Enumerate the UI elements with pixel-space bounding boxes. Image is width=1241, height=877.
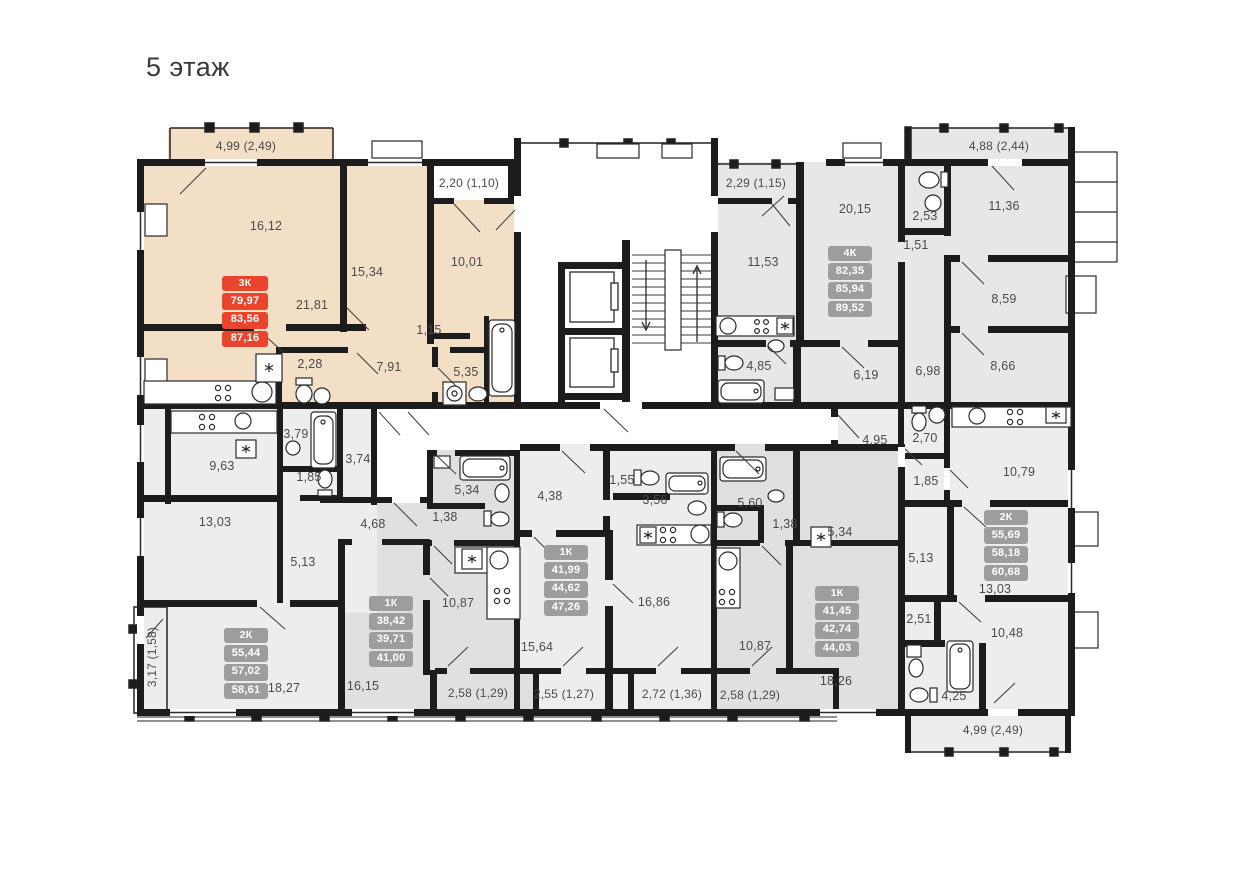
balcony-area-label: 4,99 (2,49) <box>216 139 276 153</box>
kitchen-sink-icon <box>691 525 709 543</box>
room-area-label: 5,35 <box>453 365 478 379</box>
bathtub-icon <box>311 412 336 468</box>
washing-machine-icon <box>443 382 466 405</box>
apartment-area-value: 55,69 <box>984 527 1028 544</box>
apartment-area-value: 79,97 <box>222 293 268 310</box>
room-area-label: 6,98 <box>915 364 940 378</box>
apartment-area-value: 47,26 <box>544 600 588 617</box>
toilet-icon <box>634 470 659 485</box>
apartment-area-value: 85,94 <box>828 282 872 299</box>
apartment-area-value: 55,44 <box>224 645 268 662</box>
balcony-area-label: 2,55 (1,27) <box>534 687 594 701</box>
bathtub-icon <box>718 380 764 403</box>
shelf <box>907 645 921 657</box>
room-area-label: 5,13 <box>908 551 933 565</box>
apartment-area-value: 58,61 <box>224 683 268 700</box>
kitchen-sink-icon <box>719 552 737 570</box>
room-area-label: 18,27 <box>268 681 300 695</box>
sink-icon <box>929 407 945 423</box>
room-area-label: 3,79 <box>283 427 308 441</box>
room-area-label: 5,34 <box>827 525 852 539</box>
toilet-icon <box>296 378 312 403</box>
room-area-label: 18,26 <box>820 674 852 688</box>
apartment-badge-1k-a[interactable]: 1К 38,42 39,71 41,00 <box>369 596 413 667</box>
apartment-area-value: 60,68 <box>984 565 1028 582</box>
sink-icon <box>909 659 923 677</box>
toilet-icon <box>919 172 948 188</box>
apartment-badge-2k-left[interactable]: 2К 55,44 57,02 58,61 <box>224 628 268 699</box>
sink-icon <box>469 387 487 401</box>
balcony-area-label: 2,72 (1,36) <box>642 687 702 701</box>
apartment-area-value: 39,71 <box>369 632 413 649</box>
apartment-area-value: 42,74 <box>815 622 859 639</box>
room-area-label: 8,59 <box>991 292 1016 306</box>
room-area-label: 1,85 <box>296 470 321 484</box>
apartment-area-value: 58,18 <box>984 546 1028 563</box>
room-area-label: 21,81 <box>296 298 328 312</box>
room-area-label: 4,95 <box>862 433 887 447</box>
toilet-icon <box>912 406 926 431</box>
toilet-icon <box>910 688 937 702</box>
apartment-area-value: 41,99 <box>544 562 588 579</box>
room-area-label: 3,56 <box>642 493 667 507</box>
apartment-badge-1k-b[interactable]: 1К 41,99 44,62 47,26 <box>544 545 588 616</box>
wardrobe-icon <box>640 527 656 543</box>
room-area-label: 10,48 <box>991 626 1023 640</box>
room-area-label: 2,53 <box>912 209 937 223</box>
apartment-type: 2К <box>224 628 268 643</box>
shelf <box>775 388 794 400</box>
apartment-type: 1К <box>369 596 413 611</box>
balcony-area-label: 2,20 (1,10) <box>439 176 499 190</box>
apartment-badge-1k-c[interactable]: 1К 41,45 42,74 44,03 <box>815 586 859 657</box>
kitchen-sink-icon <box>720 318 736 334</box>
room-area-label: 10,01 <box>451 255 483 269</box>
sink-icon <box>768 490 784 502</box>
room-area-label: 11,53 <box>747 255 778 269</box>
room-area-label: 15,64 <box>521 640 553 654</box>
apartment-area-value: 44,62 <box>544 581 588 598</box>
room-area-label: 4,38 <box>537 489 562 503</box>
toilet-icon <box>484 511 509 526</box>
kitchen-sink-icon <box>252 382 272 402</box>
apartment-area-value: 89,52 <box>828 301 872 318</box>
wardrobe-icon <box>462 549 482 569</box>
wardrobe-icon <box>777 318 793 334</box>
apartment-type: 3К <box>222 276 268 291</box>
room-area-label: 1,85 <box>913 474 938 488</box>
room-area-label: 4,25 <box>941 689 966 703</box>
balcony-area-label: 4,88 (2,44) <box>969 139 1029 153</box>
room-area-label: 10,87 <box>442 596 474 610</box>
room-area-label: 1,38 <box>432 510 457 524</box>
bathtub-icon <box>460 456 510 480</box>
wardrobe-icon <box>1046 407 1066 423</box>
room-area-label: 1,51 <box>903 238 928 252</box>
room-area-label: 15,34 <box>351 265 383 279</box>
sink-icon <box>286 441 300 455</box>
apartment-area-value: 41,00 <box>369 651 413 668</box>
wardrobe-icon <box>256 354 282 382</box>
room-area-label: 4,68 <box>360 517 385 531</box>
apartment-type: 2К <box>984 510 1028 525</box>
balcony-area-label: 2,58 (1,29) <box>720 688 780 702</box>
room-area-label: 10,79 <box>1003 465 1035 479</box>
room-area-label: 2,51 <box>906 612 931 626</box>
kitchen-counter <box>171 411 277 433</box>
kitchen-sink-icon <box>490 551 508 569</box>
room-area-label: 1,15 <box>416 323 441 337</box>
room-area-label: 2,70 <box>912 431 937 445</box>
floor-plan-page: 5 этаж <box>0 0 1241 877</box>
apartment-area-value: 87,16 <box>222 331 268 348</box>
sink-icon <box>768 340 784 352</box>
apartment-area-value: 44,03 <box>815 641 859 658</box>
room-area-label: 5,13 <box>290 555 315 569</box>
sink-icon <box>495 484 509 502</box>
room-area-label: 6,19 <box>853 368 878 382</box>
room-area-label: 4,85 <box>746 359 771 373</box>
apartment-type: 1К <box>544 545 588 560</box>
room-area-label: 20,15 <box>839 202 871 216</box>
balcony-area-label: 4,99 (2,49) <box>963 723 1023 737</box>
apartment-badge-2k-right[interactable]: 2К 55,69 58,18 60,68 <box>984 510 1028 581</box>
wardrobe-icon <box>236 440 256 458</box>
sink-icon <box>314 388 330 404</box>
bathtub-icon <box>489 320 515 396</box>
bathtub-icon <box>947 641 973 692</box>
apartment-type: 4К <box>828 246 872 261</box>
apartment-badge-4k[interactable]: 4К 82,35 85,94 89,52 <box>828 246 872 317</box>
room-area-label: 1,38 <box>772 517 797 531</box>
apartment-badge-3k[interactable]: 3К 79,97 83,56 87,16 <box>222 276 268 347</box>
room-area-label: 11,36 <box>988 199 1019 213</box>
apartment-area-value: 41,45 <box>815 603 859 620</box>
balcony-area-label: 2,29 (1,15) <box>726 176 786 190</box>
toilet-icon <box>717 512 742 527</box>
apartment-area-value: 83,56 <box>222 312 268 329</box>
room-area-label: 10,87 <box>739 639 771 653</box>
kitchen-sink-icon <box>235 413 251 429</box>
floor-plan-drawing <box>0 0 1241 877</box>
apartment-area-value: 82,35 <box>828 263 872 280</box>
room-area-label: 1,55 <box>609 473 634 487</box>
room-area-label: 2,28 <box>297 357 322 371</box>
stairs-icon <box>632 250 711 350</box>
apartment-area-value: 57,02 <box>224 664 268 681</box>
bathtub-icon <box>666 473 708 494</box>
room-area-label: 16,15 <box>347 679 379 693</box>
room-area-label: 8,66 <box>990 359 1015 373</box>
room-area-label: 16,86 <box>638 595 670 609</box>
apartment-type: 1К <box>815 586 859 601</box>
bathtub-icon <box>720 457 766 481</box>
balcony-area-label: 3,17 (1,58) <box>145 627 159 687</box>
room-area-label: 16,12 <box>250 219 282 233</box>
room-area-label: 3,74 <box>345 452 370 466</box>
room-area-label: 13,03 <box>979 582 1011 596</box>
kitchen-sink-icon <box>969 408 985 424</box>
toilet-icon <box>718 356 743 370</box>
room-area-label: 5,34 <box>454 483 479 497</box>
balcony-area-label: 2,58 (1,29) <box>448 686 508 700</box>
room-area-label: 13,03 <box>199 515 231 529</box>
sink-icon <box>688 501 706 515</box>
room-area-label: 5,60 <box>737 496 762 510</box>
room-area-label: 9,63 <box>209 459 234 473</box>
apartment-area-value: 38,42 <box>369 613 413 630</box>
room-area-label: 7,91 <box>376 360 401 374</box>
